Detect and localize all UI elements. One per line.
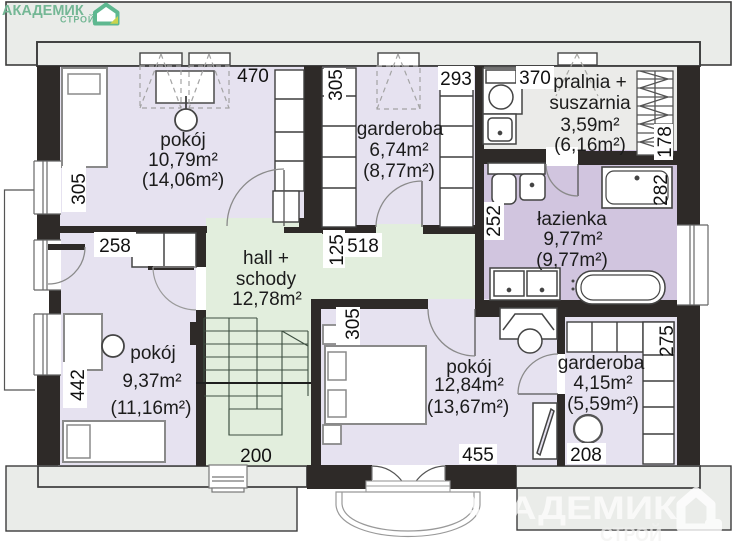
svg-text:275: 275: [657, 325, 678, 357]
svg-text:4,15m²: 4,15m²: [573, 373, 632, 394]
svg-text:305: 305: [326, 69, 347, 101]
svg-text:СТРОЙ: СТРОЙ: [60, 14, 95, 25]
svg-text:10,79m²: 10,79m²: [148, 150, 218, 171]
svg-text:6,74m²: 6,74m²: [369, 140, 428, 161]
svg-text:СТРОЙ: СТРОЙ: [600, 524, 662, 546]
svg-text:hall +: hall +: [243, 248, 289, 269]
svg-text:(11,16m²): (11,16m²): [111, 398, 192, 419]
svg-text:200: 200: [240, 446, 272, 467]
svg-text:(6,16m²): (6,16m²): [554, 135, 626, 156]
svg-text:518: 518: [347, 236, 379, 257]
svg-text:208: 208: [570, 445, 602, 466]
svg-text:pokój: pokój: [160, 130, 205, 151]
svg-text:(5,59m²): (5,59m²): [567, 394, 639, 415]
svg-text:АКАДЕМИК: АКАДЕМИК: [456, 490, 678, 526]
svg-text:suszarnia: suszarnia: [549, 93, 631, 114]
svg-text:282: 282: [651, 174, 672, 206]
svg-text:370: 370: [519, 68, 551, 89]
svg-text:9,77m²: 9,77m²: [543, 229, 602, 250]
svg-text:(14,06m²): (14,06m²): [142, 170, 224, 191]
svg-text:293: 293: [440, 69, 472, 90]
svg-text:9,37m²: 9,37m²: [122, 371, 181, 392]
svg-text:łazienka: łazienka: [537, 209, 607, 230]
svg-text:252: 252: [484, 205, 505, 237]
svg-text:(8,77m²): (8,77m²): [363, 161, 435, 182]
svg-text:12,78m²: 12,78m²: [232, 289, 302, 310]
svg-text:3,59m²: 3,59m²: [560, 115, 619, 136]
svg-text:12,84m²: 12,84m²: [434, 375, 504, 396]
svg-text:178: 178: [655, 126, 676, 158]
svg-text:470: 470: [237, 66, 269, 87]
svg-text:455: 455: [462, 445, 494, 466]
svg-text:garderoba: garderoba: [357, 119, 444, 140]
svg-text:schody: schody: [236, 269, 297, 290]
svg-text:125: 125: [327, 234, 348, 266]
svg-text:305: 305: [343, 308, 364, 340]
svg-text:(13,67m²): (13,67m²): [427, 397, 509, 418]
svg-text:442: 442: [68, 369, 89, 401]
svg-text:pralnia +: pralnia +: [553, 72, 626, 93]
svg-text:258: 258: [99, 236, 131, 257]
svg-text:pokój: pokój: [130, 343, 175, 364]
svg-text:(9,77m²): (9,77m²): [536, 250, 608, 271]
svg-text:garderoba: garderoba: [558, 353, 645, 374]
svg-text:305: 305: [69, 173, 90, 205]
